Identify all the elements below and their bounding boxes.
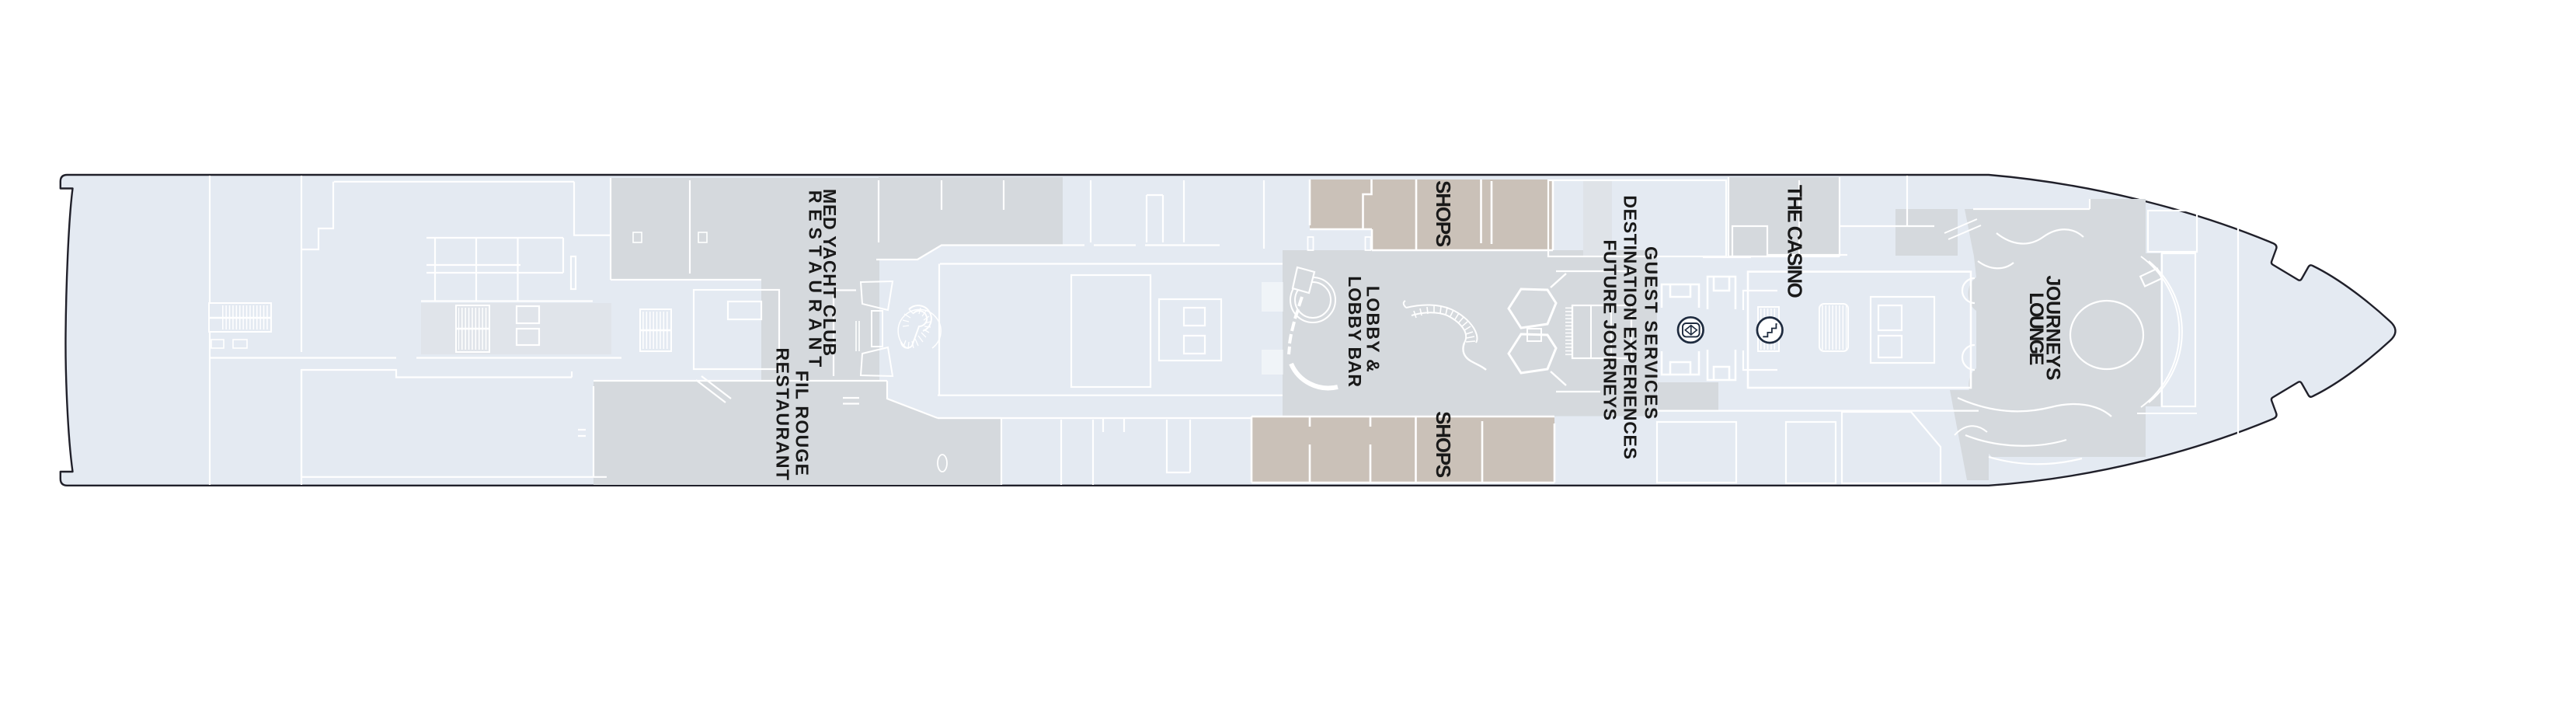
svg-text:THE CASINO: THE CASINO bbox=[1784, 185, 1807, 298]
svg-text:SHOPS: SHOPS bbox=[1432, 411, 1455, 478]
svg-text:LOUNGE: LOUNGE bbox=[2025, 292, 2047, 364]
svg-text:GUEST SERVICES: GUEST SERVICES bbox=[1641, 246, 1662, 420]
svg-text:RESTAURANT: RESTAURANT bbox=[806, 190, 826, 373]
svg-text:SHOPS: SHOPS bbox=[1432, 180, 1455, 247]
svg-text:LOBBY BAR: LOBBY BAR bbox=[1345, 276, 1365, 388]
svg-text:LOBBY &: LOBBY & bbox=[1363, 286, 1384, 373]
svg-text:DESTINATION EXPERIENCES: DESTINATION EXPERIENCES bbox=[1620, 195, 1641, 459]
svg-text:RESTAURANT: RESTAURANT bbox=[773, 347, 793, 481]
svg-text:FIL ROUGE: FIL ROUGE bbox=[792, 371, 813, 477]
svg-text:FUTURE JOURNEYS: FUTURE JOURNEYS bbox=[1600, 240, 1620, 421]
